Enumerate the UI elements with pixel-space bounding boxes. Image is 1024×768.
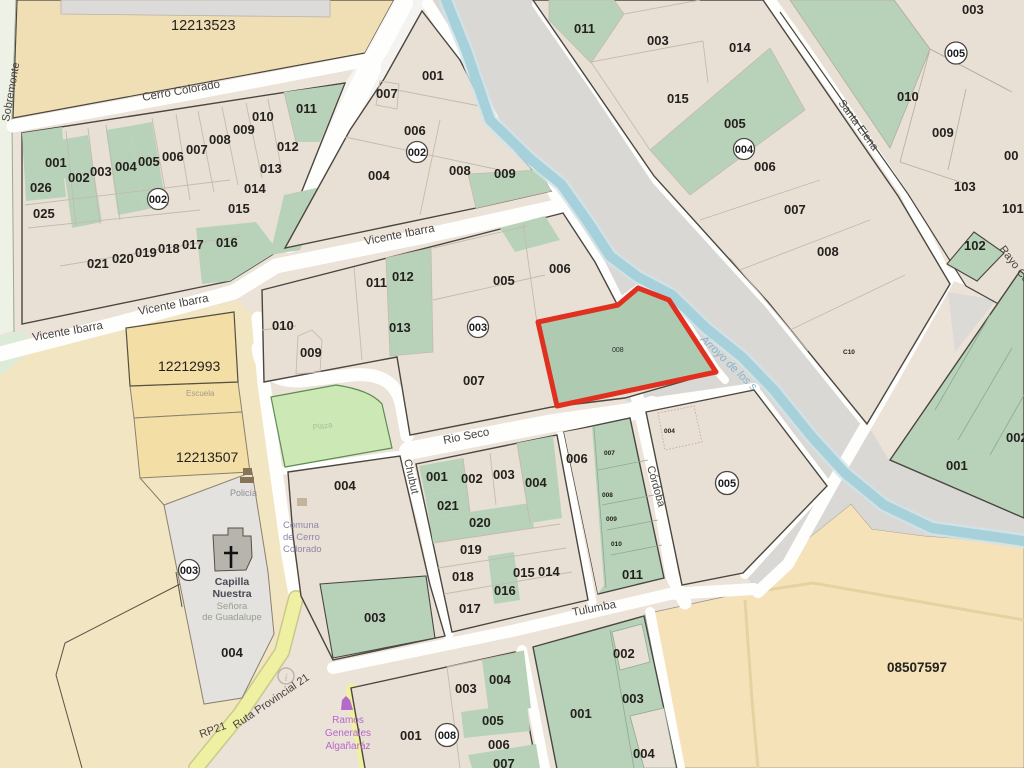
svg-text:010: 010 [897, 89, 919, 104]
svg-text:003: 003 [469, 322, 487, 334]
svg-text:010: 010 [252, 109, 274, 124]
svg-text:008: 008 [602, 492, 613, 499]
svg-text:005: 005 [947, 48, 965, 60]
svg-text:002: 002 [68, 170, 90, 185]
svg-text:001: 001 [570, 706, 592, 721]
svg-text:025: 025 [33, 206, 55, 221]
svg-text:016: 016 [494, 583, 516, 598]
svg-text:009: 009 [494, 166, 516, 181]
svg-text:026: 026 [30, 180, 52, 195]
svg-text:017: 017 [459, 601, 481, 616]
svg-text:12213523: 12213523 [171, 18, 236, 34]
svg-text:003: 003 [622, 691, 644, 706]
svg-text:008: 008 [449, 163, 471, 178]
svg-text:009: 009 [233, 122, 255, 137]
svg-text:008: 008 [209, 132, 231, 147]
svg-text:007: 007 [493, 756, 515, 768]
svg-text:013: 013 [389, 320, 411, 335]
svg-text:003: 003 [90, 164, 112, 179]
svg-text:103: 103 [954, 179, 976, 194]
svg-text:004: 004 [664, 428, 675, 435]
svg-text:005: 005 [718, 478, 736, 490]
svg-text:Colorado: Colorado [283, 544, 322, 555]
svg-text:002: 002 [613, 646, 635, 661]
svg-text:006: 006 [754, 159, 776, 174]
svg-text:016: 016 [216, 235, 238, 250]
svg-text:002: 002 [1006, 430, 1024, 445]
svg-text:Algañaráz: Algañaráz [325, 741, 370, 752]
svg-text:Policía: Policía [230, 488, 257, 498]
svg-text:015: 015 [513, 565, 535, 580]
svg-text:019: 019 [460, 542, 482, 557]
svg-text:004: 004 [489, 672, 511, 687]
svg-text:007: 007 [186, 142, 208, 157]
svg-text:012: 012 [392, 269, 414, 284]
svg-text:002: 002 [461, 471, 483, 486]
svg-text:009: 009 [932, 125, 954, 140]
svg-text:005: 005 [724, 116, 746, 131]
svg-text:004: 004 [334, 478, 356, 493]
svg-text:011: 011 [366, 275, 387, 290]
svg-text:019: 019 [135, 245, 157, 260]
svg-text:004: 004 [633, 746, 655, 761]
svg-text:015: 015 [228, 201, 250, 216]
svg-text:101: 101 [1002, 201, 1024, 216]
svg-text:004: 004 [221, 645, 243, 660]
svg-text:020: 020 [469, 515, 491, 530]
svg-text:de Guadalupe: de Guadalupe [202, 612, 262, 623]
svg-text:002: 002 [408, 147, 426, 159]
svg-text:010: 010 [611, 541, 622, 548]
svg-text:021: 021 [87, 256, 109, 271]
svg-text:Escuela: Escuela [186, 389, 215, 398]
svg-text:001: 001 [400, 728, 422, 743]
svg-text:007: 007 [463, 373, 485, 388]
svg-text:i: i [284, 672, 287, 684]
svg-text:004: 004 [368, 168, 390, 183]
svg-text:013: 013 [260, 161, 282, 176]
svg-text:00: 00 [1004, 148, 1018, 163]
svg-text:003: 003 [364, 610, 386, 625]
svg-text:009: 009 [606, 516, 617, 523]
svg-text:014: 014 [538, 564, 560, 579]
svg-text:Ramos: Ramos [332, 715, 364, 726]
svg-text:102: 102 [964, 238, 986, 253]
svg-text:007: 007 [604, 450, 615, 457]
svg-text:001: 001 [946, 458, 968, 473]
svg-text:003: 003 [962, 2, 984, 17]
svg-text:008: 008 [438, 730, 456, 742]
svg-text:010: 010 [272, 318, 294, 333]
svg-text:004: 004 [525, 475, 547, 490]
svg-text:001: 001 [45, 155, 67, 170]
svg-text:008: 008 [612, 347, 624, 354]
svg-text:006: 006 [488, 737, 510, 752]
svg-text:de Cerro: de Cerro [283, 532, 320, 543]
svg-text:12213507: 12213507 [176, 449, 239, 465]
svg-text:Capilla: Capilla [215, 576, 250, 588]
svg-text:021: 021 [437, 498, 459, 513]
svg-text:020: 020 [112, 251, 134, 266]
svg-text:009: 009 [300, 345, 322, 360]
svg-text:014: 014 [729, 40, 751, 55]
svg-text:002: 002 [149, 194, 167, 206]
svg-text:007: 007 [784, 202, 806, 217]
svg-text:006: 006 [404, 123, 426, 138]
svg-text:018: 018 [452, 569, 474, 584]
svg-text:011: 011 [622, 567, 643, 582]
svg-text:Generales: Generales [325, 728, 371, 739]
svg-text:007: 007 [376, 86, 398, 101]
svg-text:001: 001 [426, 469, 448, 484]
svg-text:Señora: Señora [217, 601, 248, 612]
svg-text:C10: C10 [843, 349, 855, 356]
svg-text:Nuestra: Nuestra [212, 588, 251, 600]
svg-text:003: 003 [493, 467, 515, 482]
svg-text:005: 005 [482, 713, 504, 728]
svg-text:005: 005 [138, 154, 160, 169]
svg-text:003: 003 [647, 33, 669, 48]
svg-text:008: 008 [817, 244, 839, 259]
svg-text:011: 011 [296, 101, 317, 116]
svg-text:003: 003 [180, 565, 198, 577]
svg-text:001: 001 [422, 68, 444, 83]
svg-text:006: 006 [549, 261, 571, 276]
svg-text:003: 003 [455, 681, 477, 696]
svg-text:006: 006 [566, 451, 588, 466]
svg-text:011: 011 [574, 21, 595, 36]
svg-text:005: 005 [493, 273, 515, 288]
svg-text:017: 017 [182, 237, 204, 252]
svg-text:08507597: 08507597 [887, 660, 947, 675]
svg-text:12212993: 12212993 [158, 358, 221, 374]
svg-text:014: 014 [244, 181, 266, 196]
svg-text:Comuna: Comuna [283, 520, 320, 531]
svg-text:015: 015 [667, 91, 689, 106]
svg-text:012: 012 [277, 139, 299, 154]
svg-text:018: 018 [158, 241, 180, 256]
svg-text:006: 006 [162, 149, 184, 164]
svg-text:004: 004 [735, 144, 754, 156]
svg-text:004: 004 [115, 159, 137, 174]
